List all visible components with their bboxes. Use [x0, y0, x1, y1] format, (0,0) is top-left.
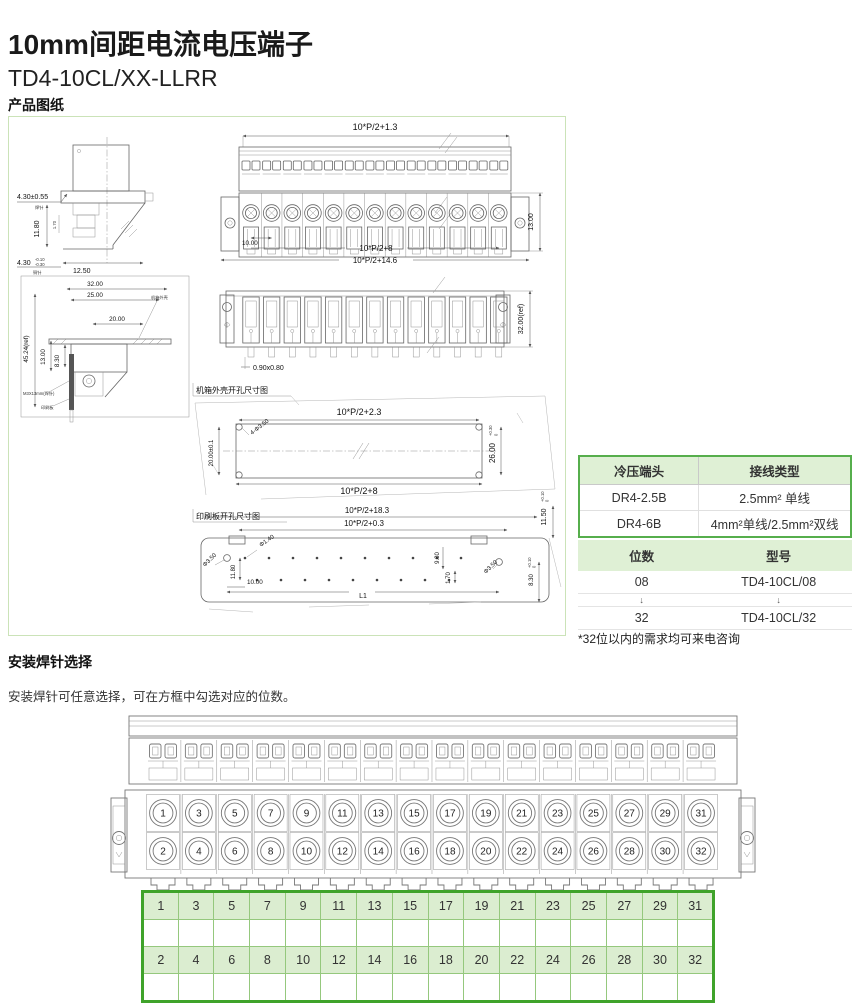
- label-case-title: 机箱外壳开孔尺寸图: [196, 385, 268, 395]
- pin-number-cell: 14: [357, 947, 393, 974]
- pin-number-cell: 28: [606, 947, 642, 974]
- pin-number-cell: 7: [250, 892, 286, 920]
- pin-checkbox-cell[interactable]: [678, 974, 714, 1002]
- product-drawing-panel: 4.30±0.55 焊针 11.80 1.70 4.30 -0.10 -0.30…: [8, 116, 566, 636]
- pin-number-cell: 31: [678, 892, 714, 920]
- terminal-number: 1: [160, 809, 166, 820]
- terminal-number: 16: [409, 847, 421, 858]
- table-row: DR4-6B 4mm²单线/2.5mm²双线: [579, 511, 851, 538]
- terminal-number: 28: [624, 847, 636, 858]
- label-mount-pin: M3X13mm(焊针): [23, 390, 55, 397]
- pin-number-cell: 24: [535, 947, 571, 974]
- dim-front-height: 13.00: [528, 213, 535, 231]
- terminal-number: 13: [373, 809, 385, 820]
- page-title: 10mm间距电流电压端子: [8, 23, 313, 63]
- drawing-side-view: 4.30±0.55 焊针 11.80 1.70 4.30 -0.10 -0.30…: [17, 137, 153, 276]
- dim-pcb-d350l: Φ3.50: [202, 552, 218, 568]
- dim-pcb-1000: 10.00: [247, 579, 263, 586]
- range-arrow: ↓: [705, 594, 852, 607]
- dim-pcb-d140: Φ1.40: [259, 534, 276, 549]
- dim-pcb-830: 8.30: [529, 574, 535, 586]
- pin-number-cell: 23: [535, 892, 571, 920]
- pin-number-cell: 15: [392, 892, 428, 920]
- pin-number-cell: 9: [285, 892, 321, 920]
- drawing-pcb-cutout: 印刷板开孔尺寸图 10*P/2+18.3 10*P/2+0.3 Φ1.40 Φ3…: [193, 491, 561, 612]
- terminal-number: 12: [337, 847, 349, 858]
- pin-number-cell: 19: [464, 892, 500, 920]
- pin-number-cell: 13: [357, 892, 393, 920]
- pin-checkbox-cell[interactable]: [392, 974, 428, 1002]
- pin-checkbox-cell[interactable]: [178, 974, 214, 1002]
- pin-selection-grid: 1357911131517192123252729312468101214161…: [141, 890, 715, 1003]
- terminal-number: 5: [232, 809, 238, 820]
- pin-checkbox-cell[interactable]: [178, 920, 214, 947]
- dim-pcb-L1: L1: [359, 593, 367, 600]
- pin-number-cell: 2: [143, 947, 179, 974]
- dim-pcb-1150-tol-bot: 0: [545, 499, 550, 502]
- product-drawings-svg: 4.30±0.55 焊针 11.80 1.70 4.30 -0.10 -0.30…: [9, 117, 565, 635]
- terminal-number: 11: [337, 809, 348, 820]
- selection-grid-row: [143, 974, 714, 1002]
- pin-number-cell: 20: [464, 947, 500, 974]
- dim-case-right-tol-bot: 0: [494, 433, 499, 436]
- label-mount-pcb: 印刷板: [41, 404, 54, 411]
- dim-side-d-tol-bot: -0.30: [35, 262, 45, 267]
- drawing-mount-side-view: 32.00 25.00 20.00 45.24(ref) 13.00 8.30 …: [21, 276, 189, 422]
- dim-side-d-note: 铜针: [33, 269, 41, 276]
- model-table-footnote: *32位以内的需求均可来电咨询: [578, 630, 740, 647]
- pin-number-cell: 32: [678, 947, 714, 974]
- dim-mount-25: 25.00: [87, 292, 103, 299]
- terminal-number: 10: [301, 847, 313, 858]
- dim-case-bottom: 10*P/2+8: [340, 486, 377, 496]
- dim-mount-83: 8.30: [54, 354, 61, 367]
- terminal-number: 9: [304, 809, 310, 820]
- dim-back-height: 32.00(ref): [518, 304, 525, 334]
- pin-checkbox-cell[interactable]: [214, 920, 250, 947]
- terminal-number: 15: [409, 809, 421, 820]
- dim-case-holes: 4-Φ3.50: [250, 418, 271, 437]
- dim-pcb-980: 9.80: [435, 552, 441, 564]
- din-rail-tabs: [151, 878, 713, 890]
- terminal-number: 31: [695, 809, 707, 820]
- terminal-number: 21: [516, 809, 528, 820]
- terminal-number: 3: [196, 809, 202, 820]
- selection-grid-row: 2468101214161820222426283032: [143, 947, 714, 974]
- pin-number-cell: 26: [571, 947, 607, 974]
- terminal-number: 6: [232, 847, 238, 858]
- model-code: TD4-10CL/XX-LLRR: [8, 65, 218, 92]
- pin-checkbox-cell[interactable]: [143, 920, 179, 947]
- pin-checkbox-cell[interactable]: [428, 974, 464, 1002]
- terminal-number: 23: [552, 809, 564, 820]
- dim-mount-20: 20.00: [109, 316, 125, 323]
- pin-checkbox-cell[interactable]: [642, 974, 678, 1002]
- dim-pcb-top: 10*P/2+18.3: [345, 506, 390, 515]
- dim-case-right: 26.00: [488, 442, 497, 463]
- table-row: 08 TD4-10CL/08: [578, 571, 852, 594]
- section-product-drawings: 产品图纸: [8, 95, 64, 115]
- pin-checkbox-cell[interactable]: [642, 920, 678, 947]
- pin-checkbox-cell[interactable]: [606, 974, 642, 1002]
- pin-number-cell: 6: [214, 947, 250, 974]
- pin-number-cell: 21: [499, 892, 535, 920]
- clamp-row: [148, 740, 716, 782]
- terminal-number: 29: [660, 809, 672, 820]
- dim-side-b: 11.80: [34, 220, 41, 237]
- selection-grid-row: 135791113151719212325272931: [143, 892, 714, 920]
- pin-number-cell: 22: [499, 947, 535, 974]
- pin-number-cell: 4: [178, 947, 214, 974]
- pin-checkbox-cell[interactable]: [535, 974, 571, 1002]
- dim-back-slot: 0.90x0.80: [253, 365, 284, 372]
- dim-mount-4524: 45.24(ref): [23, 335, 30, 362]
- drawing-front-view: 10*P/2+1.3 13.00 10.00 10*P/2+8 10*P/2+1…: [221, 122, 543, 265]
- dim-side-d: 4.30: [17, 260, 31, 267]
- dim-case-right-tol-top: +0.30: [488, 425, 493, 436]
- terminal-block-drawing: 1357911131517192123252729312468101214161…: [85, 710, 785, 894]
- terminal-positions: 1357911131517192123252729312468101214161…: [147, 794, 718, 874]
- pin-checkbox-cell[interactable]: [321, 974, 357, 1002]
- pin-selection-note: 安装焊针可任意选择，可在方框中勾选对应的位数。: [8, 686, 296, 705]
- dim-case-top: 10*P/2+2.3: [337, 407, 382, 417]
- pin-checkbox-cell[interactable]: [606, 920, 642, 947]
- pin-number-cell: 17: [428, 892, 464, 920]
- pin-checkbox-cell[interactable]: [250, 974, 286, 1002]
- pin-number-cell: 27: [606, 892, 642, 920]
- terminal-block-top-rail: [129, 716, 737, 736]
- pin-number-cell: 1: [143, 892, 179, 920]
- model-header-positions: 位数: [578, 540, 705, 571]
- pin-number-cell: 3: [178, 892, 214, 920]
- dim-front-total: 10*P/2+14.6: [353, 256, 398, 265]
- pin-checkbox-cell[interactable]: [428, 920, 464, 947]
- pin-checkbox-cell[interactable]: [250, 920, 286, 947]
- pin-checkbox-cell[interactable]: [143, 974, 179, 1002]
- pin-number-cell: 10: [285, 947, 321, 974]
- pin-number-cell: 25: [571, 892, 607, 920]
- position-count: 32: [578, 607, 705, 630]
- table-row: 32 TD4-10CL/32: [578, 607, 852, 630]
- dim-side-a: 4.30±0.55: [17, 194, 48, 201]
- selection-grid-row: [143, 920, 714, 947]
- pin-checkbox-cell[interactable]: [571, 974, 607, 1002]
- terminal-number: 24: [552, 847, 564, 858]
- crimp-terminal-table: 冷压端头 接线类型 DR4-2.5B 2.5mm² 单线 DR4-6B 4mm²…: [578, 455, 852, 538]
- pin-checkbox-cell[interactable]: [464, 920, 500, 947]
- dim-pcb-830-tol-bot: 0: [532, 565, 537, 568]
- pin-number-cell: 12: [321, 947, 357, 974]
- drawing-bottom-view: 0.90x0.80 32.00(ref): [220, 277, 533, 372]
- crimp-header-wiretype: 接线类型: [699, 456, 851, 485]
- model-header-model: 型号: [705, 540, 852, 571]
- drawing-case-cutout: 机箱外壳开孔尺寸图 10*P/2+2.3 10*P/2+8 20.00±0.1 …: [193, 383, 555, 499]
- pin-checkbox-cell[interactable]: [357, 974, 393, 1002]
- dim-mount-13: 13.00: [40, 349, 47, 365]
- dim-side-a-note: 焊针: [35, 204, 43, 211]
- dim-front-pitch: 10.00: [242, 240, 258, 247]
- section-pin-selection: 安装焊针选择: [8, 652, 92, 672]
- terminal-number: 25: [588, 809, 600, 820]
- model-number: TD4-10CL/32: [705, 607, 852, 630]
- pin-number-cell: 18: [428, 947, 464, 974]
- dim-side-c: 1.70: [52, 220, 57, 229]
- pin-checkbox-cell[interactable]: [535, 920, 571, 947]
- crimp-model: DR4-2.5B: [579, 485, 699, 511]
- pin-checkbox-cell[interactable]: [571, 920, 607, 947]
- pin-checkbox-cell[interactable]: [321, 920, 357, 947]
- pin-checkbox-cell[interactable]: [392, 920, 428, 947]
- terminal-number: 18: [444, 847, 456, 858]
- terminal-number: 30: [660, 847, 672, 858]
- pin-number-cell: 8: [250, 947, 286, 974]
- crimp-wiretype: 4mm²单线/2.5mm²双线: [699, 511, 851, 538]
- pin-number-cell: 29: [642, 892, 678, 920]
- label-pcb-title: 印刷板开孔尺寸图: [196, 511, 260, 521]
- terminal-number: 7: [268, 809, 274, 820]
- dim-mount-32: 32.00: [87, 281, 103, 288]
- dim-case-left: 20.00±0.1: [209, 439, 215, 466]
- terminal-number: 4: [196, 847, 202, 858]
- terminal-number: 26: [588, 847, 600, 858]
- position-count: 08: [578, 571, 705, 594]
- pin-checkbox-cell[interactable]: [357, 920, 393, 947]
- terminal-number: 20: [480, 847, 492, 858]
- position-model-table: 位数 型号 08 TD4-10CL/08 ↓ ↓ 32 TD4-10CL/32: [578, 540, 852, 630]
- dim-pcb-top2: 10*P/2+0.3: [344, 519, 384, 528]
- terminal-number: 22: [516, 847, 528, 858]
- terminal-number: 27: [624, 809, 636, 820]
- dim-front-width: 10*P/2+1.3: [353, 122, 398, 132]
- dim-pcb-d350r: Φ3.50: [483, 559, 499, 575]
- terminal-number: 2: [160, 847, 166, 858]
- terminal-number: 17: [444, 809, 456, 820]
- dim-pcb-1150: 11.50: [541, 508, 548, 525]
- pin-number-cell: 11: [321, 892, 357, 920]
- pin-checkbox-cell[interactable]: [464, 974, 500, 1002]
- dim-pcb-170: 1.70: [446, 572, 452, 584]
- dim-pcb-1180: 11.80: [231, 564, 237, 579]
- pin-checkbox-cell[interactable]: [499, 920, 535, 947]
- terminal-number: 19: [480, 809, 492, 820]
- pin-checkbox-cell[interactable]: [499, 974, 535, 1002]
- pin-checkbox-cell[interactable]: [214, 974, 250, 1002]
- table-row: DR4-2.5B 2.5mm² 单线: [579, 485, 851, 511]
- pin-number-cell: 5: [214, 892, 250, 920]
- dim-side-e: 12.50: [73, 268, 91, 275]
- terminal-number: 8: [268, 847, 274, 858]
- terminal-number: 32: [695, 847, 707, 858]
- pin-number-cell: 30: [642, 947, 678, 974]
- label-mount-case: 机箱外壳: [151, 294, 169, 301]
- terminal-number: 14: [373, 847, 385, 858]
- crimp-wiretype: 2.5mm² 单线: [699, 485, 851, 511]
- pin-checkbox-cell[interactable]: [285, 920, 321, 947]
- pin-checkbox-cell[interactable]: [678, 920, 714, 947]
- table-row: ↓ ↓: [578, 594, 852, 607]
- pin-number-cell: 16: [392, 947, 428, 974]
- model-number: TD4-10CL/08: [705, 571, 852, 594]
- dim-front-inner: 10*P/2+8: [359, 244, 393, 253]
- range-arrow: ↓: [578, 594, 705, 607]
- pin-checkbox-cell[interactable]: [285, 974, 321, 1002]
- crimp-header-terminal: 冷压端头: [579, 456, 699, 485]
- crimp-model: DR4-6B: [579, 511, 699, 538]
